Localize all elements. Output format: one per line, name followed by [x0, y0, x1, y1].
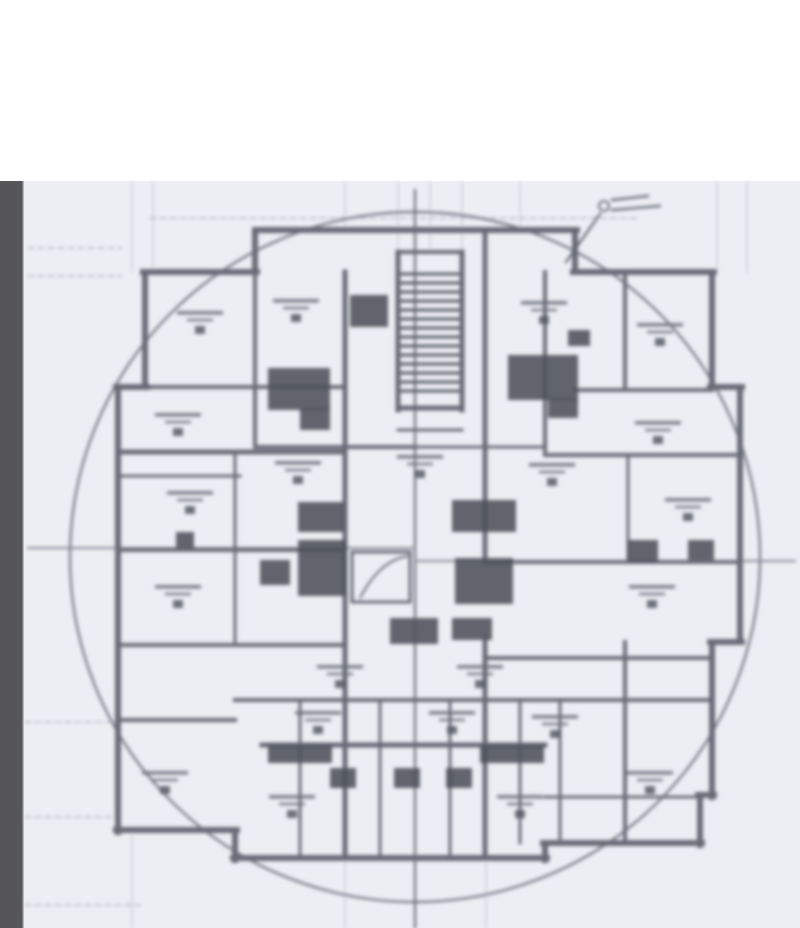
label-text-line — [165, 421, 191, 424]
label-tag-box — [313, 726, 323, 734]
label-tag-box — [415, 470, 425, 478]
label-text-line — [177, 499, 203, 502]
label-text-line — [637, 779, 663, 782]
fixture-blob — [452, 500, 516, 532]
blank-margin — [0, 0, 800, 181]
label-text-line — [627, 771, 673, 775]
label-text-line — [635, 421, 681, 425]
label-tag-box — [195, 326, 205, 334]
label-text-line — [439, 719, 465, 722]
label-text-line — [457, 665, 503, 669]
fixture-blob — [688, 540, 714, 560]
document-page — [0, 0, 800, 928]
label-text-line — [542, 723, 568, 726]
label-text-line — [531, 309, 557, 312]
fixture-blob — [508, 355, 578, 400]
label-text-line — [167, 491, 213, 495]
label-text-line — [155, 413, 201, 417]
fixture-blob — [300, 408, 330, 430]
label-text-line — [275, 461, 321, 465]
label-text-line — [305, 719, 331, 722]
fixture-blob — [268, 745, 332, 763]
label-tag-box — [335, 680, 345, 688]
label-text-line — [529, 463, 575, 467]
label-text-line — [142, 771, 188, 775]
fixture-blob — [568, 330, 590, 346]
label-text-line — [327, 673, 353, 676]
fixture-blob — [452, 618, 492, 640]
label-tag-box — [173, 600, 183, 608]
label-text-line — [152, 779, 178, 782]
fixture-blob — [350, 295, 388, 327]
label-tag-box — [287, 810, 297, 818]
label-text-line — [273, 299, 319, 303]
fixture-blob — [548, 398, 578, 418]
label-tag-box — [447, 726, 457, 734]
label-text-line — [295, 711, 341, 715]
label-text-line — [645, 429, 671, 432]
label-text-line — [637, 323, 683, 327]
label-text-line — [285, 469, 311, 472]
label-text-line — [317, 665, 363, 669]
fixture-blob — [298, 502, 344, 532]
label-text-line — [521, 301, 567, 305]
label-text-line — [665, 498, 711, 502]
label-tag-box — [173, 428, 183, 436]
label-tag-box — [645, 786, 655, 794]
fixture-blob — [330, 768, 356, 788]
label-text-line — [675, 506, 701, 509]
label-text-line — [629, 585, 675, 589]
fixture-blob — [480, 745, 544, 763]
fixture-blob — [390, 618, 438, 644]
label-text-line — [165, 593, 191, 596]
fixture-blob — [628, 540, 658, 562]
label-tag-box — [185, 506, 195, 514]
label-tag-box — [550, 730, 560, 738]
label-text-line — [269, 795, 315, 799]
label-text-line — [155, 585, 201, 589]
label-tag-box — [515, 810, 525, 818]
label-tag-box — [653, 436, 663, 444]
floorplan-svg — [0, 0, 800, 928]
fixture-blob — [176, 532, 194, 548]
label-text-line — [507, 803, 533, 806]
fixture-blob — [455, 558, 513, 604]
label-text-line — [177, 311, 223, 315]
label-text-line — [497, 795, 543, 799]
label-text-line — [187, 319, 213, 322]
fixture-blob — [394, 768, 420, 788]
label-text-line — [283, 307, 309, 310]
label-text-line — [429, 711, 475, 715]
fixture-blob — [298, 540, 346, 596]
label-tag-box — [655, 338, 665, 346]
window-edge-bar — [0, 181, 23, 928]
label-text-line — [647, 331, 673, 334]
label-text-line — [532, 715, 578, 719]
window-edge-highlight — [22, 181, 24, 928]
label-tag-box — [160, 786, 170, 794]
fixture-blob — [260, 560, 290, 585]
fixture-blob — [268, 368, 330, 410]
label-text-line — [639, 593, 665, 596]
label-tag-box — [683, 513, 693, 521]
label-tag-box — [647, 600, 657, 608]
label-text-line — [539, 471, 565, 474]
label-tag-box — [293, 476, 303, 484]
label-text-line — [467, 673, 493, 676]
label-tag-box — [539, 316, 549, 324]
label-tag-box — [475, 680, 485, 688]
fixture-blob — [446, 768, 472, 788]
label-tag-box — [547, 478, 557, 486]
label-tag-box — [291, 314, 301, 322]
label-text-line — [397, 455, 443, 459]
label-text-line — [279, 803, 305, 806]
label-text-line — [407, 463, 433, 466]
